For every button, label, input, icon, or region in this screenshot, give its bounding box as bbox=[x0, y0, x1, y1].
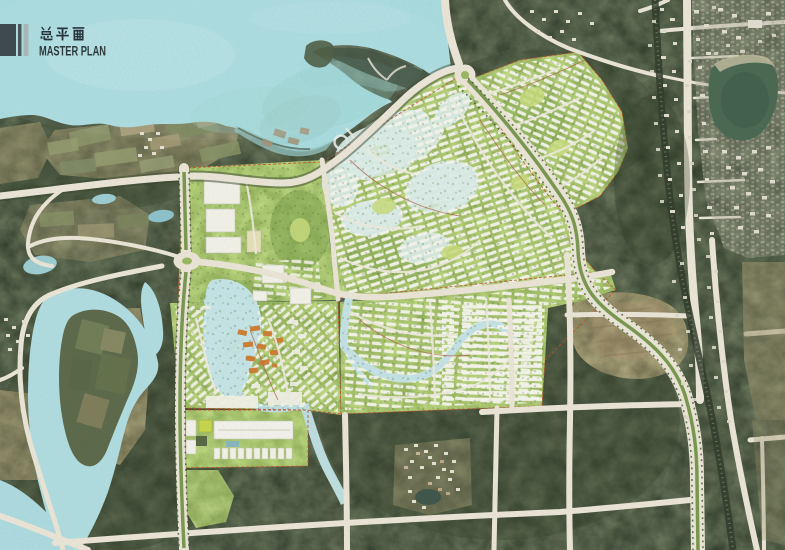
svg-text:MASTER PLAN: MASTER PLAN bbox=[39, 44, 106, 59]
